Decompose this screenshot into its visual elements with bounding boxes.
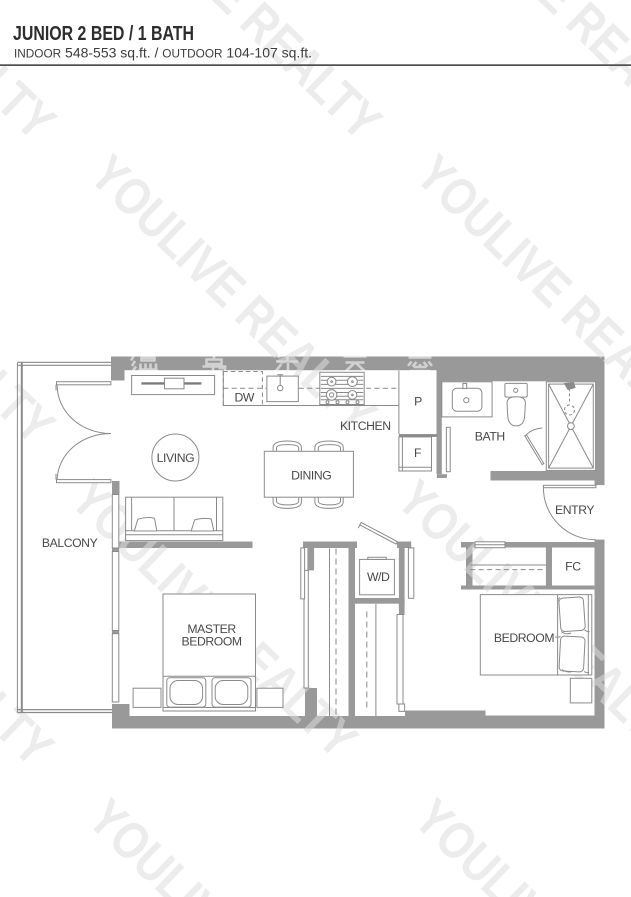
svg-text:LIVING: LIVING bbox=[157, 451, 195, 465]
svg-text:BEDROOM: BEDROOM bbox=[182, 635, 242, 649]
svg-text:FC: FC bbox=[565, 560, 581, 574]
svg-text:ENTRY: ENTRY bbox=[555, 503, 594, 517]
svg-text:DW: DW bbox=[234, 391, 254, 405]
svg-text:W/D: W/D bbox=[367, 570, 390, 584]
svg-text:INDOOR 548-553 sq.ft. / OUTDOO: INDOOR 548-553 sq.ft. / OUTDOOR 104-107 … bbox=[14, 45, 312, 61]
svg-text:DINING: DINING bbox=[291, 469, 331, 483]
svg-text:P: P bbox=[414, 395, 422, 409]
svg-text:BEDROOM: BEDROOM bbox=[494, 631, 554, 645]
svg-text:F: F bbox=[414, 446, 421, 460]
svg-text:BALCONY: BALCONY bbox=[42, 536, 98, 550]
svg-text:KITCHEN: KITCHEN bbox=[340, 419, 391, 433]
svg-text:BATH: BATH bbox=[475, 430, 505, 444]
svg-text:JUNIOR 2 BED / 1 BATH: JUNIOR 2 BED / 1 BATH bbox=[13, 22, 194, 45]
